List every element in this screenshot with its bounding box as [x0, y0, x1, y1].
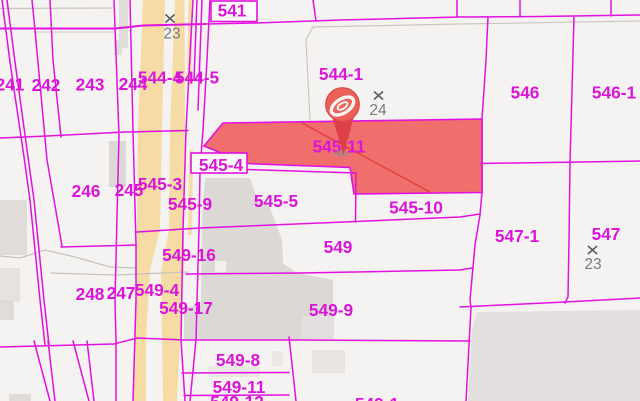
svg-text:549: 549	[324, 237, 353, 257]
svg-text:246: 246	[72, 181, 101, 201]
svg-text:242: 242	[32, 75, 61, 95]
svg-text:549-17: 549-17	[159, 298, 213, 318]
svg-text:549-16: 549-16	[162, 245, 216, 265]
svg-text:549-1: 549-1	[355, 394, 400, 401]
svg-text:23: 23	[163, 26, 180, 43]
svg-text:544-5: 544-5	[175, 68, 220, 88]
svg-text:541: 541	[218, 1, 247, 21]
svg-text:545-3: 545-3	[138, 174, 182, 194]
svg-text:247: 247	[107, 283, 136, 303]
svg-text:549-8: 549-8	[216, 350, 261, 370]
svg-text:248: 248	[76, 284, 105, 304]
svg-text:549-12: 549-12	[210, 392, 264, 401]
svg-text:243: 243	[76, 75, 105, 95]
svg-text:549-9: 549-9	[309, 300, 353, 320]
svg-text:546: 546	[511, 83, 540, 103]
svg-text:546-1: 546-1	[592, 83, 637, 103]
svg-text:545-4: 545-4	[199, 155, 244, 175]
svg-text:545-10: 545-10	[389, 198, 443, 218]
svg-text:544-1: 544-1	[319, 64, 364, 84]
svg-text:24: 24	[369, 102, 387, 119]
svg-text:545-5: 545-5	[254, 191, 299, 211]
svg-text:23: 23	[584, 256, 601, 273]
svg-text:241: 241	[0, 75, 25, 95]
svg-text:547-1: 547-1	[495, 226, 540, 246]
svg-text:549-4: 549-4	[135, 280, 180, 300]
svg-text:547: 547	[592, 224, 621, 244]
svg-text:545-9: 545-9	[168, 194, 212, 214]
